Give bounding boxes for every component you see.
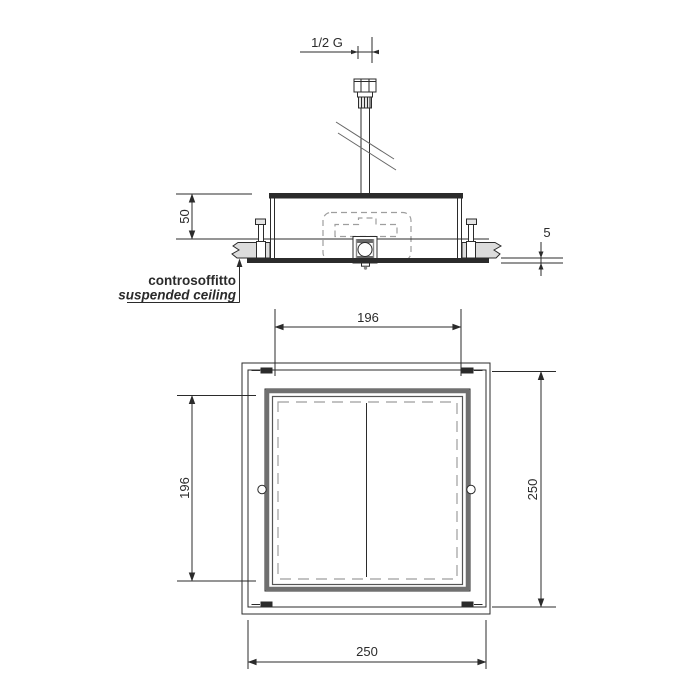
clamp-right-head [467,219,477,225]
pipe-fitting [336,79,396,193]
plan-view: 196 196 250 250 [177,309,556,669]
dim-flange-projection: 5 [501,225,563,276]
hidden-bracket [335,218,397,237]
dim-5-text: 5 [543,225,550,240]
dim-plate-height: 250 [492,372,556,608]
pipe-fitting-nut [354,79,376,92]
clip-top-left [261,368,273,374]
ceiling-label-italian: controsoffitto [148,273,236,288]
thread-size-dimension: 1/2 G [300,35,379,63]
thread-dim-arrow-right [372,50,379,54]
clamp-right-body [467,242,476,259]
dim-50-text: 50 [177,209,192,223]
plan-inner-square [273,397,463,585]
housing-wall-left [271,199,275,259]
screw-hole-right [467,485,475,493]
dim-250-right-text: 250 [525,479,540,501]
dim-plate-width: 250 [248,620,486,669]
dim-5-arrow-bottom [539,263,544,270]
clip-top-right [462,368,474,374]
clip-bottom-right [462,602,474,608]
outlet-nub [362,263,370,266]
ceiling-label-group: controsoffitto suspended ceiling [118,259,242,303]
dim-cutout-width: 196 [275,309,461,376]
dim-5-extension-lines [501,258,563,263]
pipe-break-symbol [336,122,396,170]
thread-dim-arrow-left [351,50,358,54]
dim-196-top-text: 196 [357,310,379,325]
housing-top-plate [269,193,463,199]
plan-hidden-gasket [278,402,457,579]
trim-flange [247,258,489,263]
installation-drawing: 1/2 G [0,0,700,700]
screw-hole-left [258,485,266,493]
dim-250-right-extension-lines [492,372,556,608]
housing-wall-right [458,199,462,259]
ceiling-leader-arrow [237,259,243,268]
dim-196-left-text: 196 [177,477,192,499]
outlet-dot [364,266,367,269]
plan-housing-outline [265,389,470,591]
thread-size-text: 1/2 G [311,35,343,50]
fitting-collar [358,92,373,97]
clamp-left-head [256,219,266,225]
dim-recess-depth: 50 [176,194,252,239]
clamp-left-stem [259,225,264,242]
section-view: 1/2 G [118,35,563,303]
plan-housing-frame [268,392,468,589]
clip-bottom-left [261,602,273,608]
dim-5-arrow-top [539,252,544,259]
dim-cutout-height: 196 [177,396,256,582]
clamp-right-stem [469,225,474,242]
valve-circle [358,243,372,257]
dim-250-bottom-text: 250 [356,644,378,659]
ceiling-label-english: suspended ceiling [118,288,237,303]
clamp-left-body [257,242,266,259]
